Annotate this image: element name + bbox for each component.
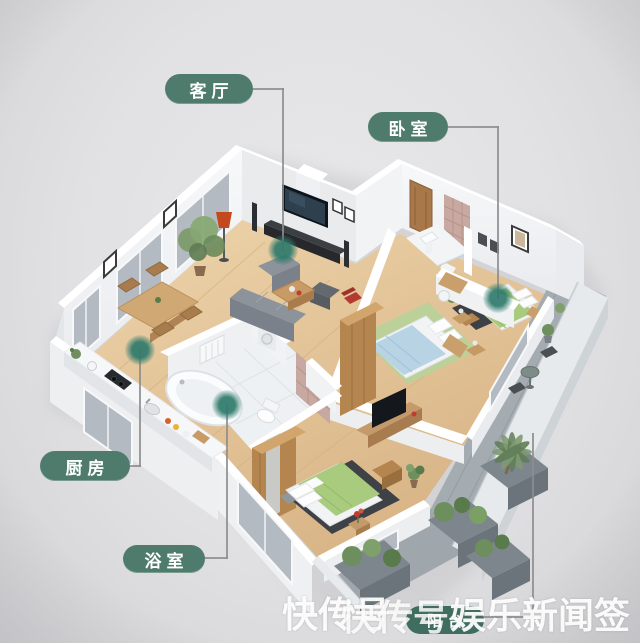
living-room-anchor-dot [268, 235, 298, 265]
bathroom-anchor-dot [212, 390, 242, 420]
kitchen-connector-v [139, 350, 141, 467]
label-kitchen: 厨房 [40, 451, 130, 481]
balcony-connector-v [532, 433, 534, 618]
apartment-3d-render [0, 0, 640, 643]
bedroom-connector-v [497, 126, 499, 299]
bedroom-connector-h [448, 126, 499, 128]
bathroom-connector-v [226, 405, 228, 559]
vignette-overlay [0, 0, 640, 643]
watermark-text-2: 快传号 [341, 601, 449, 637]
floorplan-figure: 客厅 卧室 厨房 浴室 阳台 快传号 快传号 娱乐新闻签 [0, 0, 640, 643]
watermark-text-3: 娱乐新闻签 [450, 599, 630, 635]
kitchen-anchor-dot [125, 335, 155, 365]
bathroom-connector-h [204, 557, 228, 559]
label-bathroom: 浴室 [123, 545, 205, 573]
label-bedroom: 卧室 [368, 112, 448, 142]
bedroom-anchor-dot [483, 283, 513, 313]
living-room-connector-h [253, 88, 284, 90]
label-living-room: 客厅 [165, 74, 253, 104]
living-room-connector-v [282, 88, 284, 251]
